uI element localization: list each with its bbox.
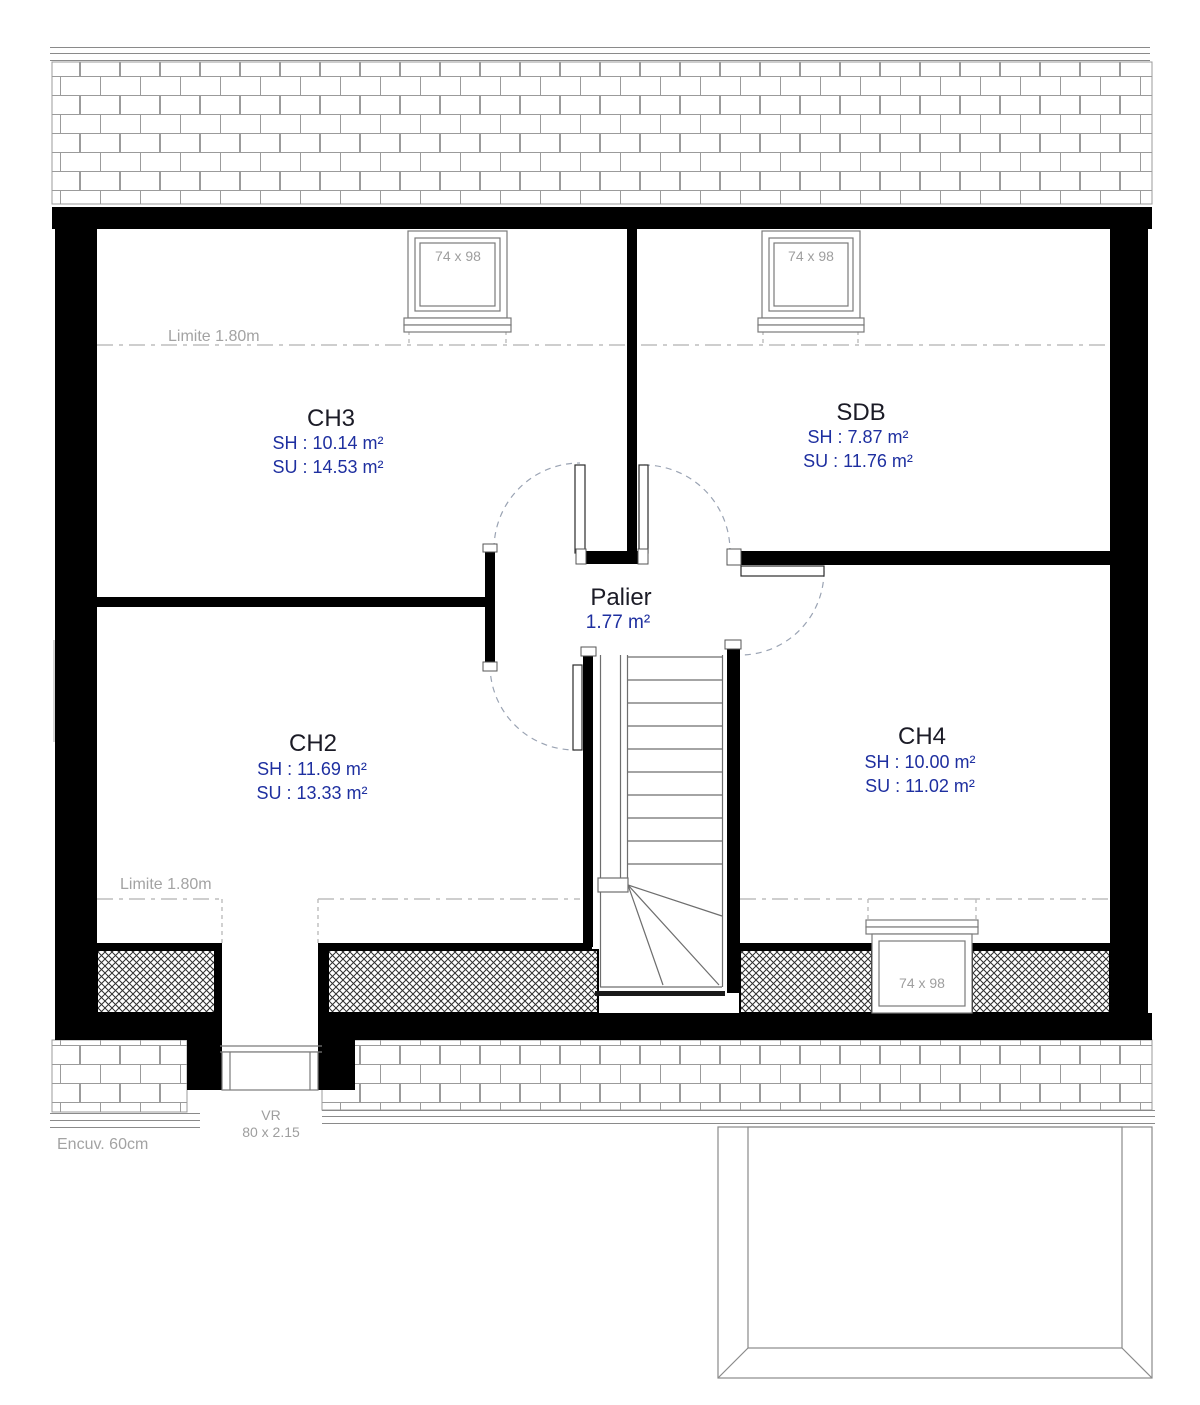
vr-jamb-left [187, 1040, 222, 1090]
vr-jamb-right [318, 1040, 355, 1090]
vr-window [220, 1046, 322, 1090]
knee-wall-segment [328, 950, 598, 1013]
skylight-sill [758, 318, 864, 325]
roof-band-bottom-right [322, 1040, 1155, 1124]
skylight-sill [758, 325, 864, 332]
room-sh-ch2: SH : 11.69 m² [257, 759, 367, 779]
room-sh-ch3: SH : 10.14 m² [272, 433, 383, 453]
wall-south-left [55, 1013, 222, 1040]
door-arc-ch4 [741, 571, 824, 655]
room-ch2-label: CH2 SH : 11.69 m² SU : 13.33 m² [256, 730, 367, 803]
room-su-sdb: SU : 11.76 m² [803, 451, 913, 471]
wall-ch3-sdb [627, 229, 637, 553]
room-name-sdb: SDB [836, 399, 885, 426]
height-limit-lines [97, 331, 1110, 943]
eaves-lines-bottom-left [50, 1114, 200, 1128]
knee-wall-border [215, 943, 222, 1015]
limit-label-bottom: Limite 1.80m [120, 876, 212, 893]
knee-wall-segment [972, 950, 1110, 1013]
tile-hatch-bottom-right [322, 1040, 1152, 1110]
skylight-ch4 [866, 920, 978, 1013]
room-name-ch3: CH3 [307, 405, 355, 432]
room-name-palier: Palier [590, 584, 651, 611]
door-jamb [483, 662, 497, 671]
stair-winder-post [598, 878, 628, 892]
skylight-sdb [758, 231, 864, 332]
door-jamb [576, 549, 586, 564]
skylight-sill [404, 325, 511, 332]
stair-treads [627, 657, 722, 864]
wall-south-right [318, 1013, 1152, 1040]
eaves-lines-bottom-right [322, 1111, 1155, 1124]
skylight-sill [866, 927, 978, 934]
staircase [595, 655, 725, 996]
skylight-ch3 [404, 231, 511, 332]
door-jamb [581, 647, 596, 656]
wall-ch3-ch2 [97, 597, 495, 607]
garage-roof-outer [718, 1127, 1152, 1378]
skylight-ch3-size: 74 x 98 [435, 248, 481, 264]
door-leaf-ch2 [573, 665, 582, 750]
room-name-ch4: CH4 [898, 723, 946, 750]
room-palier-label: Palier 1.77 m² [586, 584, 652, 633]
stair-stringers [600, 655, 723, 987]
door-arc-ch3 [494, 463, 580, 549]
wall-stair-west [583, 655, 593, 947]
tile-hatch-top [52, 62, 1152, 204]
wall-palier-north [586, 551, 638, 564]
door-arc-ch2 [490, 665, 575, 750]
doors [483, 463, 824, 750]
roof-band-bottom-left [50, 1040, 200, 1128]
wall-stair-east [727, 648, 740, 993]
wall-east [1110, 207, 1148, 1037]
door-jamb [638, 549, 648, 564]
garage-roof-hips [718, 1348, 1152, 1378]
skylight-frame-inner [879, 941, 965, 1006]
knee-wall-border [972, 943, 1110, 950]
knee-wall-border [740, 943, 872, 950]
tile-hatch-bottom-left [52, 1040, 187, 1112]
knee-wall-segment [740, 950, 872, 1013]
room-su-ch2: SU : 13.33 m² [256, 783, 367, 803]
floor-plan-drawing: Limite 1.80m 74 x 98 74 x 98 CH3 SH : 10… [0, 0, 1200, 1405]
eaves-lines-top [50, 48, 1150, 61]
door-leaf-sdb [639, 465, 648, 553]
limit-label-top: Limite 1.80m [168, 328, 260, 345]
vr-label: VR [261, 1107, 280, 1123]
knee-wall-border [318, 943, 328, 1015]
room-sh-ch4: SH : 10.00 m² [864, 752, 975, 772]
vr-window-frame [222, 1052, 318, 1090]
wall-north [52, 207, 1152, 229]
knee-wall-segment [97, 950, 215, 1013]
door-arc-sdb [644, 465, 730, 551]
room-su-ch4: SU : 11.02 m² [865, 776, 975, 796]
door-jamb [483, 544, 497, 552]
garage-roof-inner [748, 1127, 1122, 1348]
wall-palier-west [485, 551, 495, 663]
floor-plan-page: Limite 1.80m 74 x 98 74 x 98 CH3 SH : 10… [0, 0, 1200, 1405]
door-jamb [727, 549, 741, 565]
stair-winder-treads [628, 885, 722, 985]
wall-sdb-ch4 [740, 551, 1110, 565]
skylight-sill [404, 318, 511, 325]
knee-wall-border [318, 943, 592, 950]
knee-wall-border [97, 943, 222, 950]
room-ch3-label: CH3 SH : 10.14 m² SU : 14.53 m² [272, 405, 383, 477]
vr-window-head [220, 1046, 322, 1052]
wall-west [55, 207, 97, 1037]
room-ch4-label: CH4 SH : 10.00 m² SU : 11.02 m² [864, 723, 975, 796]
door-jamb [725, 640, 741, 649]
room-area-palier: 1.77 m² [586, 612, 650, 633]
room-su-ch3: SU : 14.53 m² [272, 457, 383, 477]
stair-trimmer [595, 991, 725, 996]
room-name-ch2: CH2 [289, 730, 337, 757]
room-sdb-label: SDB SH : 7.87 m² SU : 11.76 m² [803, 399, 913, 471]
skylight-sdb-size: 74 x 98 [788, 248, 834, 264]
encuvement-label: Encuv. 60cm [57, 1136, 148, 1153]
roof-band-top [50, 48, 1152, 205]
door-leaf-ch3 [575, 465, 585, 553]
door-leaf-ch4 [741, 566, 824, 576]
skylight-ch4-size: 74 x 98 [899, 975, 945, 991]
garage-roof-outline [718, 1127, 1152, 1378]
room-sh-sdb: SH : 7.87 m² [807, 427, 908, 447]
skylight-sill [866, 920, 978, 927]
vr-size: 80 x 2.15 [242, 1124, 300, 1140]
